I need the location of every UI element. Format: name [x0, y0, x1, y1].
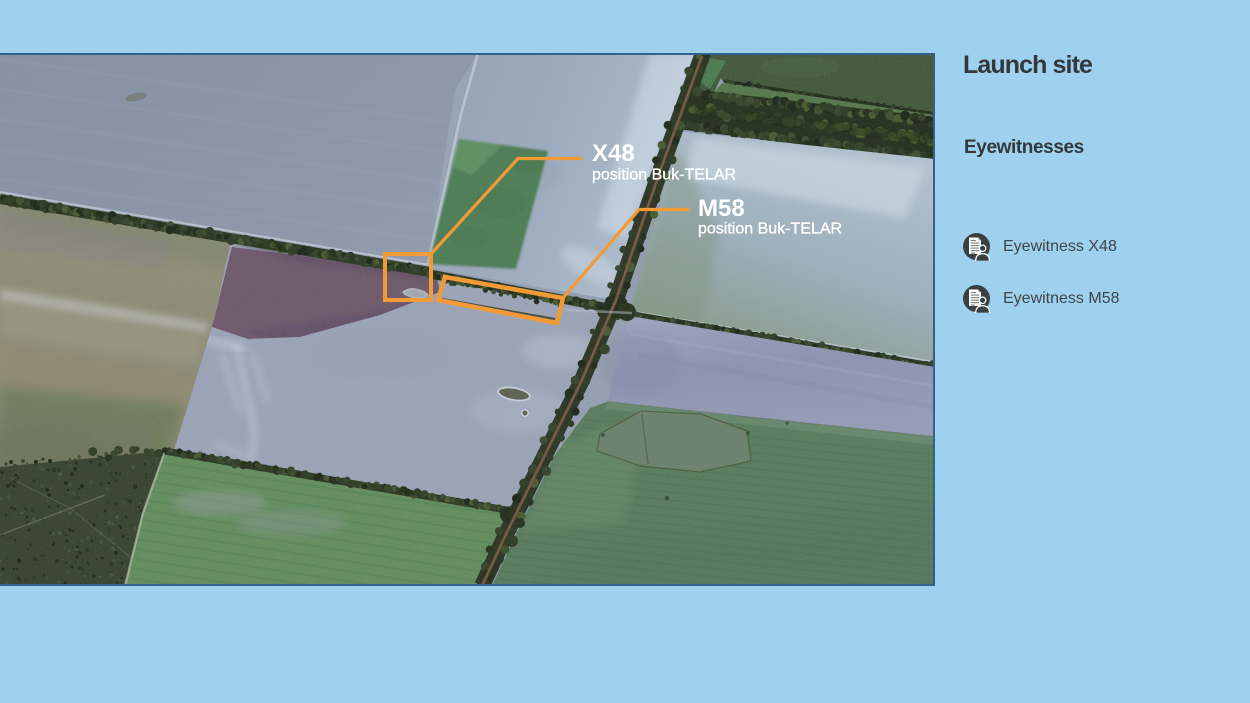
svg-text:M58: M58: [698, 195, 745, 222]
svg-text:position Buk-TELAR: position Buk-TELAR: [592, 167, 736, 184]
svg-text:X48: X48: [592, 140, 635, 167]
svg-text:position Buk-TELAR: position Buk-TELAR: [698, 221, 842, 238]
